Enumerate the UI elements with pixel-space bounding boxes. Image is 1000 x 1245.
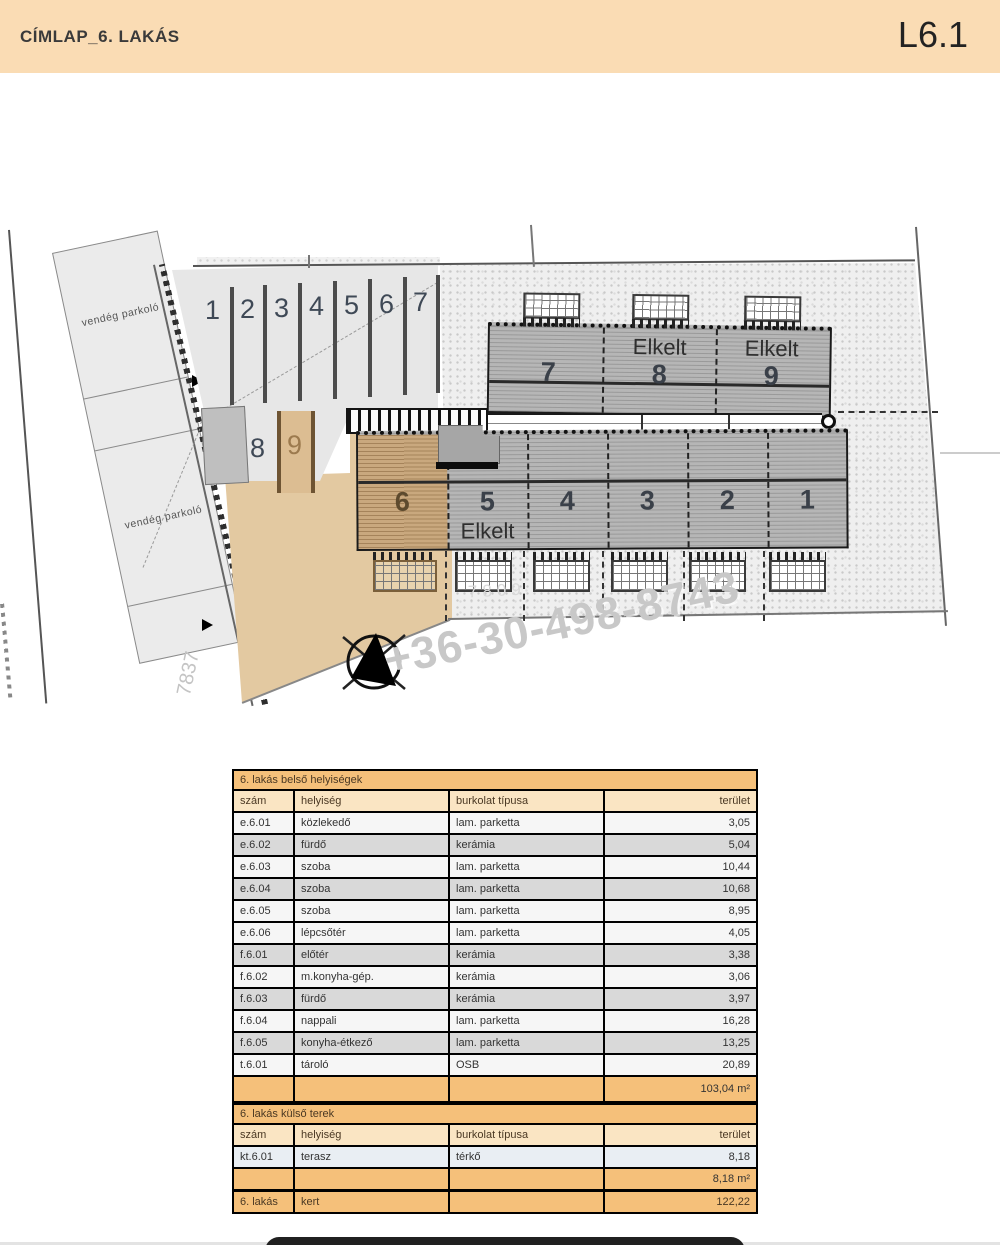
interior-table-row: e.6.04 szoba lam. parketta 10,68	[233, 878, 757, 900]
parking-number-2: 2	[240, 294, 255, 325]
interior-total-area: 103,04 m²	[604, 1076, 757, 1102]
flooring-type-cell: kerámia	[449, 944, 604, 966]
subtotal-empty-cell	[449, 1168, 604, 1191]
parking-divider	[298, 283, 302, 401]
area-value-cell: 10,68	[604, 878, 757, 900]
parking-number-1: 1	[205, 295, 220, 326]
lower-unit-3-number: 3	[640, 485, 655, 516]
interior-table-row: f.6.05 konyha-étkező lam. parketta 13,25	[233, 1032, 757, 1054]
parking-number-6: 6	[379, 289, 394, 320]
room-name-cell: tároló	[294, 1054, 449, 1076]
interior-table-row: t.6.01 tároló OSB 20,89	[233, 1054, 757, 1076]
parking-divider	[403, 277, 407, 395]
road-hatch-line-left	[0, 603, 12, 698]
interior-rooms-table: 6. lakás belső helyiségek szám helyiség …	[232, 769, 758, 1103]
flooring-type-cell: kerámia	[449, 966, 604, 988]
lower-unit-divider	[767, 433, 770, 547]
total-empty-cell	[233, 1076, 294, 1102]
lower-unit-divider	[607, 434, 610, 548]
flooring-type-cell: térkő	[449, 1146, 604, 1168]
exterior-spaces-table: 6. lakás külső terek szám helyiség burko…	[232, 1103, 758, 1214]
room-name-cell: lépcsőtér	[294, 922, 449, 944]
parking-number-3: 3	[274, 293, 289, 324]
parking-divider	[436, 275, 440, 393]
upper-roof-box-2	[632, 294, 689, 321]
col-header-burkolat: burkolat típusa	[449, 790, 604, 812]
exterior-table-title: 6. lakás külső terek	[233, 1104, 757, 1124]
room-name-cell: szoba	[294, 856, 449, 878]
upper-roof-box-3	[744, 296, 801, 323]
terrace-hatch-6	[373, 552, 437, 560]
interior-table-header-row: szám helyiség burkolat típusa terület	[233, 790, 757, 812]
parking-number-8: 8	[250, 433, 265, 464]
exterior-table-body: kt.6.01 terasz térkő 8,18	[233, 1146, 757, 1168]
terrace-4	[533, 560, 590, 592]
total-empty-cell	[294, 1076, 449, 1102]
col-header-helyiseg: helyiség	[294, 1124, 449, 1146]
lower-unit-divider	[687, 433, 690, 547]
flooring-type-cell: kerámia	[449, 988, 604, 1010]
lower-unit-5-status: Elkelt	[461, 518, 515, 544]
room-number-cell: f.6.05	[233, 1032, 294, 1054]
col-header-helyiseg: helyiség	[294, 790, 449, 812]
exterior-table-title-row: 6. lakás külső terek	[233, 1104, 757, 1124]
interior-table-row: f.6.03 fürdő kerámia 3,97	[233, 988, 757, 1010]
interior-table-row: e.6.06 lépcsőtér lam. parketta 4,05	[233, 922, 757, 944]
room-number-cell: f.6.02	[233, 966, 294, 988]
terrace-hatch-1	[769, 552, 826, 560]
area-value-cell: 3,97	[604, 988, 757, 1010]
area-value-cell: 5,04	[604, 834, 757, 856]
room-name-cell: előtér	[294, 944, 449, 966]
summary-empty-cell	[449, 1191, 604, 1214]
col-header-szam: szám	[233, 790, 294, 812]
parking-number-7: 7	[413, 287, 428, 318]
exterior-subtotal-row: 8,18 m²	[233, 1168, 757, 1191]
room-number-cell: f.6.04	[233, 1010, 294, 1032]
ground-parcel-number: 7809	[468, 580, 527, 603]
boundary-dashed-right	[838, 411, 938, 413]
area-value-cell: 13,25	[604, 1032, 757, 1054]
terrace-6	[373, 560, 437, 592]
interior-table-title: 6. lakás belső helyiségek	[233, 770, 757, 790]
parcel-guest-parking-1: vendég parkoló	[53, 232, 188, 400]
upper-roof-box-1	[523, 292, 580, 319]
parcel-divider-dash	[445, 551, 447, 621]
area-value-cell: 3,38	[604, 944, 757, 966]
room-number-cell: kt.6.01	[233, 1146, 294, 1168]
col-header-terulet: terület	[604, 790, 757, 812]
area-value-cell: 3,06	[604, 966, 757, 988]
area-value-cell: 10,44	[604, 856, 757, 878]
exterior-subtotal-area: 8,18 m²	[604, 1168, 757, 1191]
parking-number-4: 4	[309, 291, 324, 322]
parking-divider	[263, 285, 267, 403]
summary-unit-cell: 6. lakás	[233, 1191, 294, 1214]
upper-unit-9-status: Elkelt	[745, 336, 799, 363]
room-number-cell: e.6.05	[233, 900, 294, 922]
subtotal-empty-cell	[233, 1168, 294, 1191]
upper-unit-8-status: Elkelt	[633, 334, 687, 361]
interior-table-body: e.6.01 közlekedő lam. parketta 3,05 e.6.…	[233, 812, 757, 1076]
room-number-cell: e.6.06	[233, 922, 294, 944]
parking-number-5: 5	[344, 290, 359, 321]
area-value-cell: 20,89	[604, 1054, 757, 1076]
lower-unit-1-number: 1	[800, 485, 815, 516]
terrace-hatch-3	[611, 552, 668, 560]
upper-unit-8-number: 8	[652, 359, 667, 390]
room-number-cell: f.6.01	[233, 944, 294, 966]
room-name-cell: szoba	[294, 878, 449, 900]
upper-unit-divider	[602, 328, 605, 413]
room-number-cell: e.6.01	[233, 812, 294, 834]
interior-table-row: e.6.01 közlekedő lam. parketta 3,05	[233, 812, 757, 834]
upper-unit-7-number: 7	[541, 357, 556, 388]
area-value-cell: 4,05	[604, 922, 757, 944]
room-name-cell: közlekedő	[294, 812, 449, 834]
exterior-table-header-row: szám helyiség burkolat típusa terület	[233, 1124, 757, 1146]
interior-table-row: e.6.05 szoba lam. parketta 8,95	[233, 900, 757, 922]
document-title: CÍMLAP_6. LAKÁS	[20, 27, 180, 47]
area-value-cell: 8,95	[604, 900, 757, 922]
walkway-rail-line	[488, 423, 822, 424]
upper-building: 7 Elkelt 8 Elkelt 9	[487, 322, 832, 418]
exterior-table-row: kt.6.01 terasz térkő 8,18	[233, 1146, 757, 1168]
interior-table-row: e.6.03 szoba lam. parketta 10,44	[233, 856, 757, 878]
room-number-cell: f.6.03	[233, 988, 294, 1010]
interior-table-row: f.6.02 m.konyha-gép. kerámia 3,06	[233, 966, 757, 988]
subtotal-empty-cell	[294, 1168, 449, 1191]
entry-porch-step	[436, 462, 498, 469]
upper-roof-hatch-1	[523, 317, 580, 327]
total-empty-cell	[449, 1076, 604, 1102]
room-name-cell: fürdő	[294, 988, 449, 1010]
col-header-szam: szám	[233, 1124, 294, 1146]
upper-unit-divider	[715, 329, 718, 414]
entrance-arrow-lower	[202, 619, 213, 631]
flooring-type-cell: OSB	[449, 1054, 604, 1076]
interior-table-row: e.6.02 fürdő kerámia 5,04	[233, 834, 757, 856]
bottom-bar	[265, 1237, 745, 1245]
flooring-type-cell: lam. parketta	[449, 812, 604, 834]
room-name-cell: konyha-étkező	[294, 1032, 449, 1054]
boundary-stub-line-1	[530, 225, 534, 267]
guest-parking-label-1: vendég parkoló	[81, 301, 161, 329]
garden-summary-row: 6. lakás kert 122,22	[233, 1191, 757, 1214]
room-name-cell: terasz	[294, 1146, 449, 1168]
gate-circle	[821, 414, 836, 429]
flooring-type-cell: lam. parketta	[449, 922, 604, 944]
lower-unit-2-number: 2	[720, 485, 735, 516]
flooring-type-cell: lam. parketta	[449, 878, 604, 900]
interior-table-row: f.6.01 előtér kerámia 3,38	[233, 944, 757, 966]
upper-roof-hatch-2	[632, 319, 689, 329]
area-value-cell: 8,18	[604, 1146, 757, 1168]
terrace-hatch-4	[533, 552, 590, 560]
room-number-cell: t.6.01	[233, 1054, 294, 1076]
room-name-cell: fürdő	[294, 834, 449, 856]
flooring-type-cell: kerámia	[449, 834, 604, 856]
area-value-cell: 3,05	[604, 812, 757, 834]
title-bar: CÍMLAP_6. LAKÁS L6.1	[0, 0, 1000, 73]
site-plan: vendég parkoló vendég parkoló 7837	[0, 215, 1000, 730]
road-parcel-number: 7837	[173, 649, 205, 697]
road-edge-line-left	[8, 230, 47, 704]
flooring-type-cell: lam. parketta	[449, 856, 604, 878]
parking-divider	[368, 279, 372, 397]
parking-spot-8-pad	[201, 406, 249, 485]
terrace-1	[769, 560, 826, 592]
room-number-cell: e.6.03	[233, 856, 294, 878]
room-name-cell: nappali	[294, 1010, 449, 1032]
boundary-stub-line-2	[308, 255, 310, 268]
summary-room-cell: kert	[294, 1191, 449, 1214]
terrace-hatch-2	[689, 552, 746, 560]
terrace-hatch-5	[455, 552, 512, 560]
interior-total-row: 103,04 m²	[233, 1076, 757, 1102]
lower-unit-4-number: 4	[560, 486, 575, 517]
parking-divider	[333, 281, 337, 399]
room-name-cell: szoba	[294, 900, 449, 922]
upper-roof-hatch-3	[744, 321, 801, 331]
flooring-type-cell: lam. parketta	[449, 900, 604, 922]
parcel-divider-dash	[763, 551, 765, 621]
faint-line-right	[940, 452, 1000, 454]
summary-area-cell: 122,22	[604, 1191, 757, 1214]
interior-table-row: f.6.04 nappali lam. parketta 16,28	[233, 1010, 757, 1032]
lower-unit-5-number: 5	[480, 486, 495, 517]
room-number-cell: e.6.02	[233, 834, 294, 856]
lower-unit-6-number: 6	[395, 487, 410, 518]
area-value-cell: 16,28	[604, 1010, 757, 1032]
sheet-number: L6.1	[898, 14, 968, 56]
col-header-terulet: terület	[604, 1124, 757, 1146]
lower-building: 6 5 Elkelt 4 3 2 1	[356, 428, 849, 551]
room-name-cell: m.konyha-gép.	[294, 966, 449, 988]
lower-unit-divider	[527, 434, 530, 548]
page: CÍMLAP_6. LAKÁS L6.1 vendég parkoló vend…	[0, 0, 1000, 1245]
parking-number-9: 9	[287, 430, 302, 461]
room-number-cell: e.6.04	[233, 878, 294, 900]
upper-unit-9-number: 9	[764, 361, 779, 392]
interior-table-title-row: 6. lakás belső helyiségek	[233, 770, 757, 790]
flooring-type-cell: lam. parketta	[449, 1010, 604, 1032]
flooring-type-cell: lam. parketta	[449, 1032, 604, 1054]
parking-divider	[230, 287, 234, 405]
col-header-burkolat: burkolat típusa	[449, 1124, 604, 1146]
